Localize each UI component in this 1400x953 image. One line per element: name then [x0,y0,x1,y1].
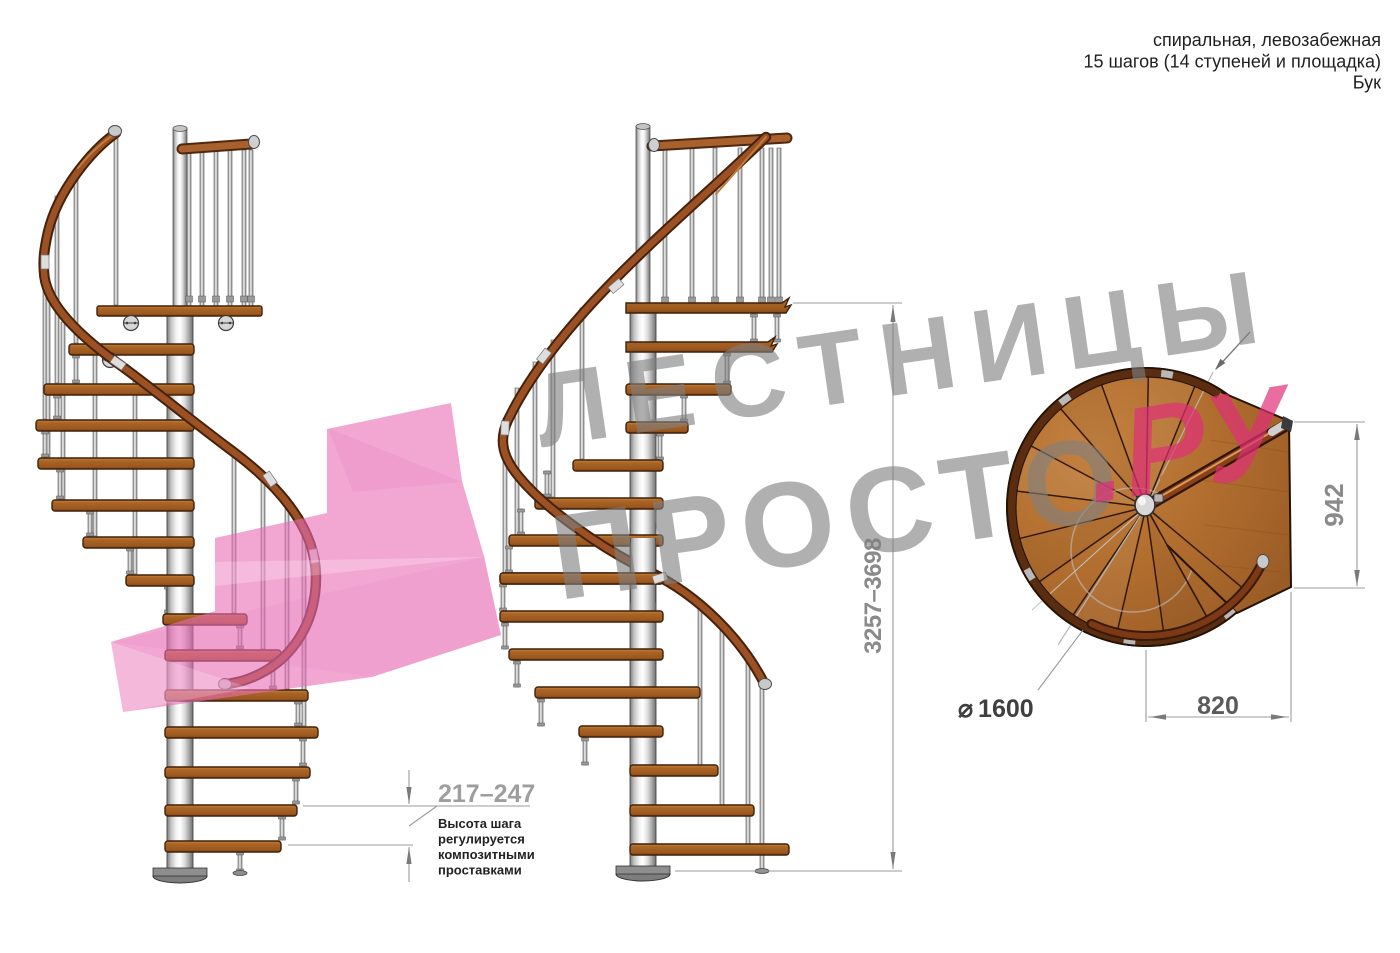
svg-text:регулируется: регулируется [438,832,525,847]
svg-text:942: 942 [1319,483,1349,526]
svg-text:композитными: композитными [438,847,535,862]
svg-text:проставками: проставками [438,863,522,878]
svg-text:Высота шага: Высота шага [438,816,522,831]
svg-text:217–247: 217–247 [438,780,535,808]
svg-text:Бук: Бук [1353,73,1381,93]
svg-text:820: 820 [1197,692,1239,720]
svg-text:⌀ 1600: ⌀ 1600 [958,695,1034,723]
svg-text:спиральная, левозабежная: спиральная, левозабежная [1153,30,1381,50]
svg-text:15 шагов (14 ступеней и площад: 15 шагов (14 ступеней и площадка) [1083,51,1381,71]
